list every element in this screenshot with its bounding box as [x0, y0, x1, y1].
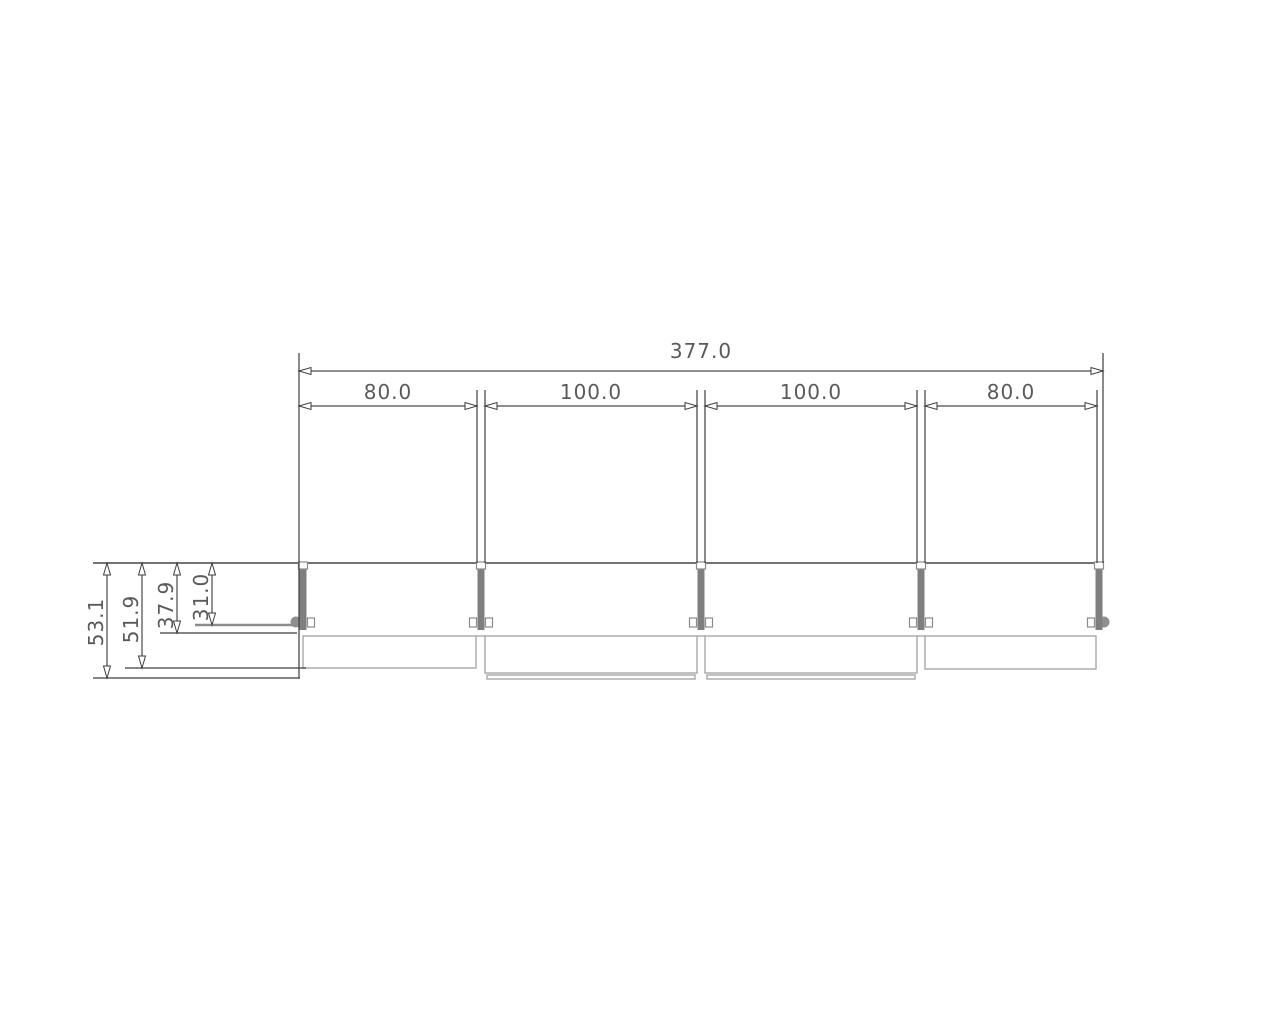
depth-37-dimension-label: 37.9 [154, 581, 178, 630]
glass-panel-2-bottom-band [487, 675, 695, 679]
overall-arrow-right [1091, 368, 1103, 375]
overall-arrow-left [299, 368, 311, 375]
bay-1-arrow-right [465, 403, 477, 410]
post-5-clamp-left [1088, 618, 1095, 627]
post-3-clamp-left [690, 618, 697, 627]
post-3-top-square [697, 562, 706, 569]
post-1 [299, 562, 315, 630]
bay-4-dimension-label: 80.0 [987, 380, 1036, 404]
post-5-body [1096, 564, 1103, 630]
post-3-clamp-right [706, 618, 713, 627]
post-2-body [478, 564, 485, 630]
bay-4-arrow-left [925, 403, 937, 410]
post-4 [910, 562, 933, 630]
bay-3-dimension-label: 100.0 [780, 380, 842, 404]
depth-dimension-51-9: 51.9 [119, 563, 146, 668]
post-5 [1088, 562, 1104, 630]
post-4-clamp-right [926, 618, 933, 627]
post-4-top-square [917, 562, 926, 569]
post-4-clamp-left [910, 618, 917, 627]
overall-dimension-label: 377.0 [670, 339, 732, 363]
post-1-clamp-right [308, 618, 315, 627]
depth-dimension-53-1: 53.1 [84, 563, 111, 678]
glass-panel-2 [485, 636, 697, 673]
glass-panel-1 [303, 636, 476, 668]
depth-53-arrow-up [104, 563, 111, 575]
bay-3-arrow-right [905, 403, 917, 410]
depth-31-dimension-label: 31.0 [189, 573, 213, 622]
bay-1-dimension-label: 80.0 [364, 380, 413, 404]
depth-51-arrow-down [139, 656, 146, 668]
bay-4-arrow-right [1085, 403, 1097, 410]
bay-dimension-1: 80.0 [299, 380, 477, 410]
bay-dimensions: 80.0 100.0 100.0 80.0 [299, 380, 1097, 563]
glass-panel-3 [705, 636, 917, 673]
post-1-top-square [299, 562, 308, 569]
post-1-body [300, 564, 307, 630]
bay-2-arrow-left [485, 403, 497, 410]
bay-dimension-3: 100.0 [705, 380, 917, 410]
glass-panel-4 [925, 636, 1096, 669]
post-5-top-square [1095, 562, 1104, 569]
bay-3-arrow-left [705, 403, 717, 410]
bay-1-arrow-left [299, 403, 311, 410]
depth-dimension-31-0: 31.0 [189, 563, 216, 625]
depth-51-dimension-label: 51.9 [119, 595, 143, 644]
cad-drawing-canvas: 377.0 80.0 100.0 100.0 [0, 0, 1280, 1024]
cad-drawing-page: 377.0 80.0 100.0 100.0 [0, 0, 1280, 1024]
bay-2-arrow-right [685, 403, 697, 410]
bay-dimension-2: 100.0 [485, 380, 697, 410]
post-2 [470, 562, 493, 630]
post-4-body [918, 564, 925, 630]
post-2-top-square [477, 562, 486, 569]
depth-37-arrow-up [174, 563, 181, 575]
bay-dimension-4: 80.0 [925, 380, 1097, 410]
post-3 [690, 562, 713, 630]
bay-2-dimension-label: 100.0 [560, 380, 622, 404]
post-3-body [698, 564, 705, 630]
depth-dimension-37-9: 37.9 [154, 563, 181, 633]
glass-panel-3-bottom-band [707, 675, 915, 679]
depth-dimensions: 53.1 51.9 37.9 31.0 [84, 563, 306, 678]
depth-51-arrow-up [139, 563, 146, 575]
structure-plan-view [93, 562, 1110, 679]
post-2-clamp-left [470, 618, 477, 627]
post-2-clamp-right [486, 618, 493, 627]
depth-53-arrow-down [104, 666, 111, 678]
depth-53-dimension-label: 53.1 [84, 598, 108, 647]
